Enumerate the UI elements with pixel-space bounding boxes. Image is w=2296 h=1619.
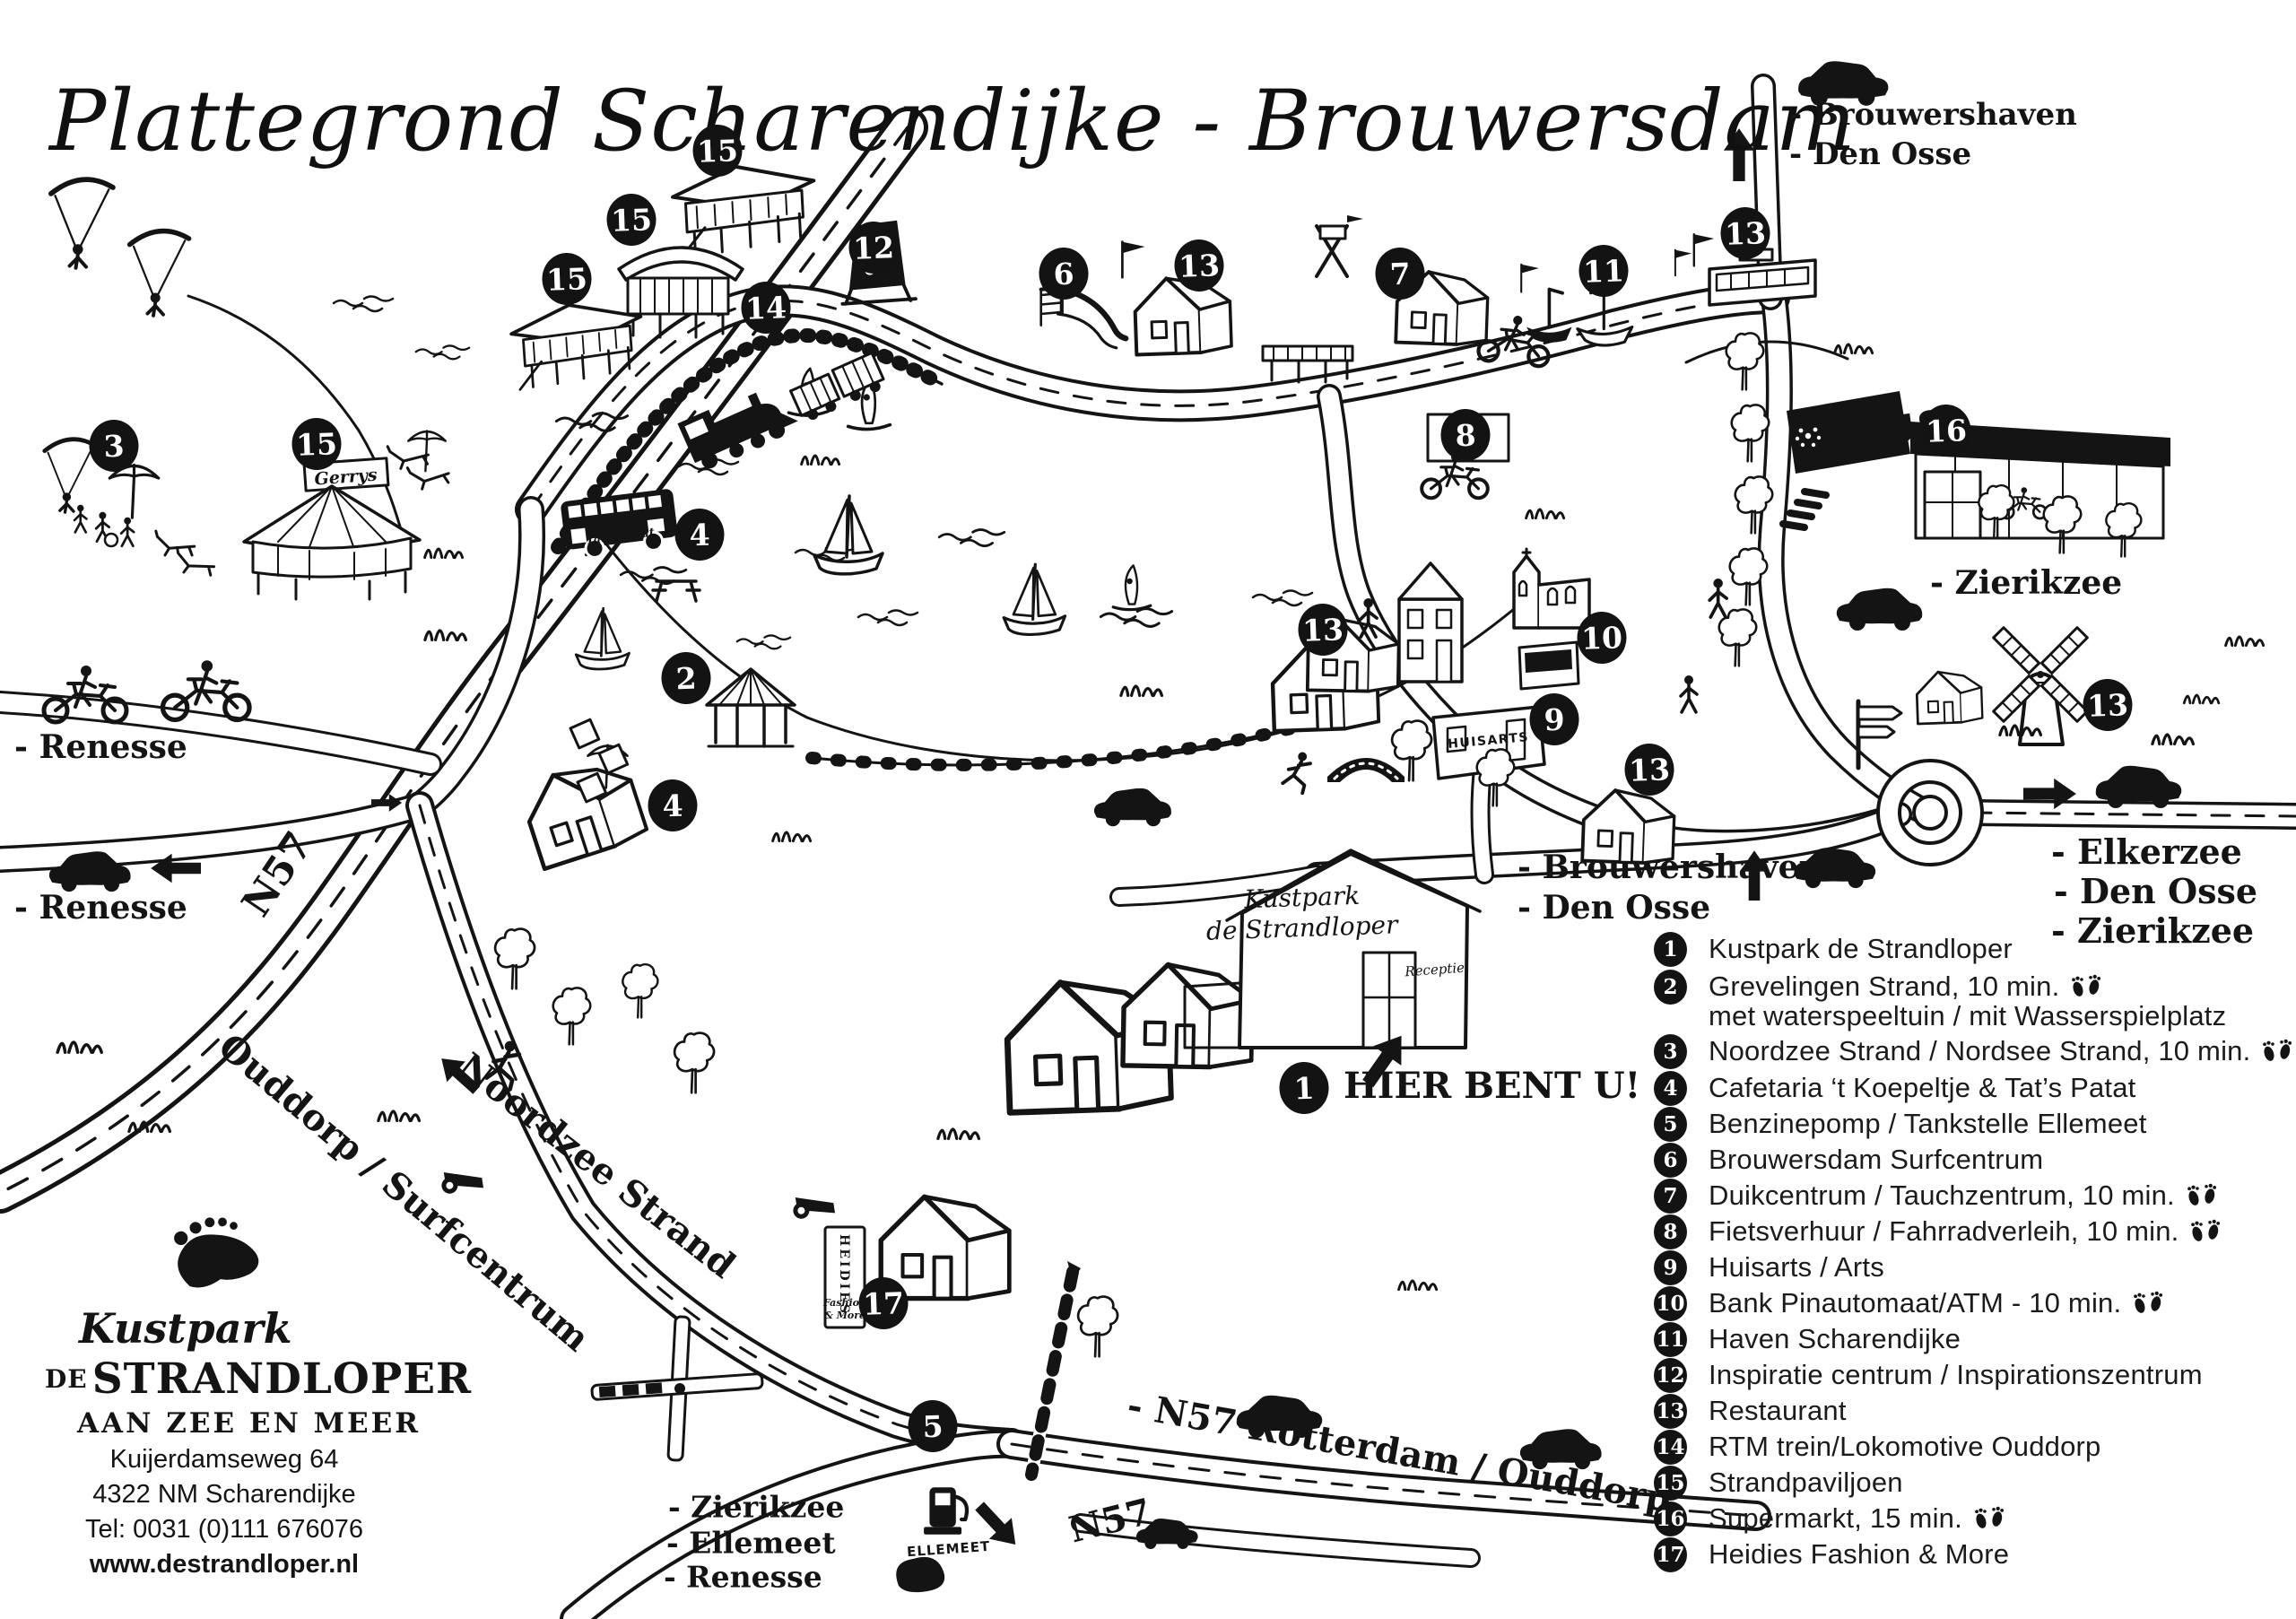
flag-icon (1521, 265, 1539, 292)
legend-marker-6: 6 (1654, 1143, 1687, 1178)
legend-item-6: 6Brouwersdam Surfcentrum (1654, 1142, 2043, 1178)
legend-marker-7: 7 (1654, 1179, 1687, 1214)
legend-text: Benzinepomp / Tankstelle Ellemeet (1709, 1108, 2147, 1140)
ellemeet-sign: ELLEMEET (907, 1538, 991, 1560)
dir-renesse-south: - Renesse (664, 1562, 822, 1592)
legend-text: Supermarkt, 15 min. (1709, 1502, 1962, 1535)
walker-icon (1681, 675, 1697, 712)
dir-den-osse-east: - Den Osse (2054, 875, 2257, 909)
legend-marker-1: 1 (1654, 932, 1687, 967)
bush-icon (896, 1557, 944, 1592)
legend-text: Kustpark de Strandloper (1709, 933, 2013, 965)
dir-zierikzee-southeast: - Zierikzee (2051, 914, 2254, 948)
here-you-are: HIER BENT U! (1344, 1068, 1640, 1104)
walker-icon (1709, 579, 1726, 617)
legend-text: RTM trein/Lokomotive Ouddorp (1709, 1431, 2101, 1463)
dir-den-osse-mid: - Den Osse (1518, 892, 1710, 924)
legend-text: Fietsverhuur / Fahrradverleih, 10 min. (1709, 1215, 2179, 1248)
windsurfer-icon (1113, 565, 1151, 609)
legend-item-13: 13Restaurant (1654, 1393, 1847, 1429)
restaurant-icon (1134, 276, 1231, 355)
gazebo-icon (707, 669, 795, 746)
legend-marker-8: 8 (1654, 1214, 1687, 1249)
dir-renesse-bike: - Renesse (14, 731, 187, 763)
lounger-icon (173, 547, 216, 577)
logo-website: www.destrandloper.nl (45, 1550, 404, 1580)
legend-item-12: 12Inspiratie centrum / Inspirationszentr… (1654, 1357, 2203, 1393)
dir-zierikzee-east: - Zierikzee (1930, 567, 2122, 599)
legend-text: Strandpaviljoen (1709, 1467, 1903, 1499)
lifeguard-tower-icon (1317, 215, 1363, 276)
legend-text: Bank Pinautomaat/ATM - 10 min. (1709, 1287, 2121, 1319)
sailboat-icon (1004, 564, 1065, 634)
legend-item-5: 5Benzinepomp / Tankstelle Ellemeet (1654, 1106, 2147, 1142)
park-house-icon (1123, 963, 1253, 1067)
legend-text: Inspiratie centrum / Inspirationszentrum (1709, 1359, 2203, 1391)
dir-zierikzee-south: - Zierikzee (668, 1493, 844, 1522)
footsteps-icon (2189, 1219, 2223, 1245)
legend-item-9: 9Huisarts / Arts (1654, 1249, 1884, 1285)
footsteps-icon (2186, 1183, 2220, 1209)
legend-marker-14: 14 (1654, 1430, 1687, 1465)
beach-ball-icon (105, 534, 117, 546)
legend-text: Restaurant (1709, 1395, 1847, 1427)
legend-item-15: 15Strandpaviljoen (1654, 1465, 1903, 1501)
logo-de: DE (45, 1364, 88, 1394)
windmill-area (1858, 628, 2087, 768)
legend-marker-9: 9 (1654, 1250, 1687, 1285)
legend-item-16: 16Supermarkt, 15 min. (1654, 1501, 2007, 1536)
logo-strandloper: STRANDLOPER (92, 1354, 472, 1404)
legend-text: met waterspeeltuin / mit Wasserspielplat… (1709, 1000, 2226, 1032)
legend-item-continuation: met waterspeeltuin / mit Wasserspielplat… (1709, 998, 2226, 1034)
dir-brouwershaven-mid: - Brouwershaven (1518, 851, 1822, 883)
legend-text: Brouwersdam Surfcentrum (1709, 1144, 2043, 1176)
mill-house-icon (1916, 670, 1982, 724)
person-icon (121, 518, 134, 546)
legend-marker-10: 10 (1654, 1286, 1687, 1321)
dir-elkerzee: - Elkerzee (2051, 835, 2242, 869)
sailboat-icon (814, 496, 883, 574)
runner-icon (1283, 753, 1310, 794)
sailboat-icon (576, 608, 629, 669)
heidies-house-icon (881, 1197, 1009, 1298)
logo-address2: 4322 NM Scharendijke (45, 1480, 404, 1510)
picnic-bench-icon (653, 581, 700, 601)
footsteps-icon (2261, 1039, 2295, 1065)
dir-brouwershaven-north: - Brouwershaven (1789, 100, 2077, 130)
flag-icon (1675, 250, 1692, 276)
legend-text: Huisarts / Arts (1709, 1251, 1884, 1284)
kite-icon (45, 440, 96, 512)
logo-phone: Tel: 0031 (0)111 676076 (45, 1515, 404, 1545)
logo-kustpark: Kustpark (45, 1304, 404, 1353)
legend-text: Haven Scharendijke (1709, 1323, 1961, 1355)
windmill-icon (1994, 628, 2088, 744)
legend-marker-16: 16 (1654, 1501, 1687, 1536)
cafetaria-icon (517, 753, 648, 869)
page-title: Plattegrond Scharendijke - Brouwersdam (49, 73, 1857, 170)
park-logo: Kustpark DE STRANDLOPER AAN ZEE EN MEER … (45, 1213, 404, 1580)
car-icon (1837, 588, 1922, 631)
footsteps-icon (1973, 1506, 2007, 1532)
gas-station: ELLEMEET (896, 1487, 991, 1592)
road-east-exit (1973, 813, 2296, 816)
legend-text: Duikcentrum / Tauchzentrum, 10 min. (1709, 1179, 2175, 1212)
lounger-icon (407, 461, 450, 491)
legend-item-11: 11Haven Scharendijke (1654, 1321, 1961, 1357)
bridge-icon (1327, 758, 1405, 782)
legend-marker-15: 15 (1654, 1466, 1687, 1501)
footsteps-icon (2070, 974, 2104, 1000)
legend-item-8: 8Fietsverhuur / Fahrradverleih, 10 min. (1654, 1214, 2223, 1249)
legend-marker-5: 5 (1654, 1107, 1687, 1142)
parasol-icon (109, 465, 159, 518)
legend-item-3: 3Noordzee Strand / Nordsee Strand, 10 mi… (1654, 1033, 2295, 1069)
logo-address1: Kuijerdamseweg 64 (45, 1445, 404, 1475)
church-icon (1514, 549, 1589, 628)
roundabout (1889, 771, 1971, 854)
legend-item-4: 4Cafetaria ‘t Koepeltje & Tat’s Patat (1654, 1070, 2136, 1106)
bank-kiosk-icon (1519, 642, 1578, 689)
legend-text: Heidies Fashion & More (1709, 1538, 2009, 1571)
legend-marker-3: 3 (1654, 1034, 1687, 1069)
legend-marker-4: 4 (1654, 1071, 1687, 1106)
lounger-icon (154, 531, 196, 557)
legend-item-10: 10Bank Pinautomaat/ATM - 10 min. (1654, 1285, 2166, 1321)
person-icon (74, 505, 87, 533)
legend-item-14: 14RTM trein/Lokomotive Ouddorp (1654, 1429, 2101, 1465)
legend-item-17: 17Heidies Fashion & More (1654, 1536, 2009, 1572)
flag-icon (1122, 242, 1144, 278)
legend-item-1: 1Kustpark de Strandloper (1654, 931, 2013, 967)
legend-marker-13: 13 (1654, 1394, 1687, 1429)
road-east-side (1771, 298, 1919, 809)
kitesurfer-icon (51, 179, 113, 268)
car-icon (1094, 788, 1171, 826)
flag-icon (1694, 234, 1714, 265)
legend-marker-17: 17 (1654, 1537, 1687, 1572)
kitesurfer-icon (130, 231, 189, 316)
tall-house-icon (1399, 563, 1462, 682)
footprint-logo-icon (111, 1202, 330, 1311)
dir-den-osse-north: - Den Osse (1789, 139, 1971, 170)
dir-renesse-car: - Renesse (14, 892, 187, 924)
legend-marker-2: 2 (1654, 970, 1687, 1005)
lounger-icon (387, 442, 429, 469)
legend-text: Cafetaria ‘t Koepeltje & Tat’s Patat (1709, 1072, 2136, 1104)
logo-name: DE STRANDLOPER (45, 1354, 404, 1404)
logo-tagline: AAN ZEE EN MEER (45, 1407, 404, 1440)
legend-text: Noordzee Strand / Nordsee Strand, 10 min… (1709, 1035, 2250, 1067)
legend-marker-11: 11 (1654, 1322, 1687, 1357)
footsteps-icon (2132, 1291, 2166, 1317)
legend-marker-12: 12 (1654, 1358, 1687, 1393)
barn-sign-line1: Kustpark (1243, 881, 1361, 915)
dir-ellemeet-south: - Ellemeet (666, 1528, 836, 1558)
map-canvas: PLUS HUISARTS Tat's Patat (0, 0, 2296, 1619)
legend-item-7: 7Duikcentrum / Tauchzentrum, 10 min. (1654, 1178, 2220, 1214)
fuel-pump-icon (924, 1487, 967, 1535)
